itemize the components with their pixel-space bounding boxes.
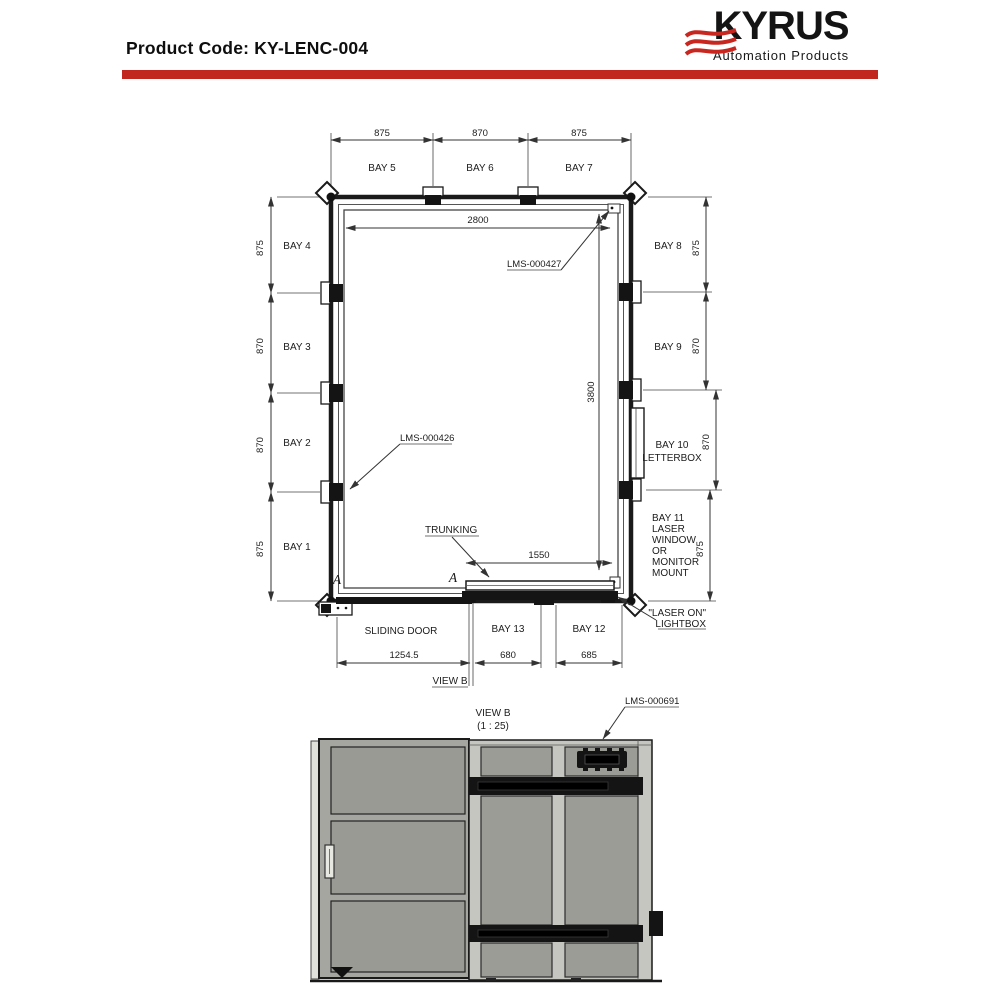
- top-right-corner-bracket: [608, 204, 620, 213]
- dim-bay5: 875: [374, 128, 390, 139]
- dim-bay10: 870: [701, 434, 712, 450]
- label-bay6: BAY 6: [466, 163, 494, 174]
- label-bay4: BAY 4: [283, 241, 311, 252]
- dim-bay3: 870: [255, 338, 266, 354]
- laser-on-label: "LASER ON": [648, 608, 706, 619]
- view-b-ref-label: VIEW B: [432, 676, 467, 687]
- svg-text:MONITOR: MONITOR: [652, 557, 699, 568]
- svg-text:WINDOW: WINDOW: [652, 535, 696, 546]
- view-b-drawing: VIEW B (1 : 25) LMS-000691: [310, 696, 679, 981]
- plan-view-drawing: 875 870 875 BAY 5 BAY 6 BAY 7 2800 3800 …: [255, 128, 722, 687]
- side-connector-box: [649, 911, 663, 936]
- sliding-door-panel: [336, 597, 472, 604]
- letterbox-slot: [631, 408, 644, 478]
- lightbox-label: LIGHTBOX: [655, 619, 706, 630]
- trunking-channel: [466, 581, 614, 590]
- svg-text:OR: OR: [652, 546, 667, 557]
- part-label-top-right: LMS-000427: [507, 259, 561, 270]
- dim-bay12: 685: [581, 650, 597, 661]
- trunking-rail-bottom: [469, 925, 643, 942]
- view-b-scale: (1 : 25): [477, 721, 509, 732]
- svg-text:LASER: LASER: [652, 524, 685, 535]
- sliding-door-label: SLIDING DOOR: [365, 626, 438, 637]
- technical-drawing: 875 870 875 BAY 5 BAY 6 BAY 7 2800 3800 …: [0, 0, 1000, 1000]
- label-bay12: BAY 12: [573, 624, 606, 635]
- trunking-label: TRUNKING: [425, 525, 477, 536]
- dim-bay1: 875: [255, 541, 266, 557]
- section-marker-a-right: A: [448, 570, 458, 585]
- door-handle: [325, 845, 334, 878]
- label-bay5: BAY 5: [368, 163, 396, 174]
- label-bay10: BAY 10: [656, 440, 689, 451]
- svg-text:BAY 11: BAY 11: [652, 513, 685, 524]
- label-bay8: BAY 8: [654, 241, 682, 252]
- part-label-left-wall: LMS-000426: [400, 433, 454, 444]
- dim-bay2: 870: [255, 437, 266, 453]
- dim-inner-height: 3800: [586, 381, 597, 402]
- dim-bay4: 875: [255, 240, 266, 256]
- laser-on-lightbox: [577, 748, 627, 771]
- dim-bay11: 875: [695, 541, 706, 557]
- view-b-frame-section: [469, 740, 663, 981]
- label-bay10-letterbox: LETTERBOX: [642, 453, 702, 464]
- dim-bay9: 870: [691, 338, 702, 354]
- dim-bay8: 875: [691, 240, 702, 256]
- label-bay11-block: BAY 11 LASER WINDOW OR MONITOR MOUNT: [652, 513, 699, 579]
- svg-text:MOUNT: MOUNT: [652, 568, 689, 579]
- dim-bay6: 870: [472, 128, 488, 139]
- trunking-rail-top: [469, 777, 643, 795]
- dim-bay7: 875: [571, 128, 587, 139]
- dim-trunking: 1550: [528, 550, 549, 561]
- dim-inner-width: 2800: [467, 215, 488, 226]
- label-bay9: BAY 9: [654, 342, 682, 353]
- label-bay2: BAY 2: [283, 438, 311, 449]
- view-b-sliding-door: [311, 739, 469, 979]
- section-marker-a-left: A: [332, 572, 342, 587]
- dim-bay13: 680: [500, 650, 516, 661]
- label-bay1: BAY 1: [283, 542, 311, 553]
- view-b-title: VIEW B: [475, 708, 510, 719]
- label-bay3: BAY 3: [283, 342, 311, 353]
- dim-sliding-door: 1254.5: [389, 650, 418, 661]
- part-label-lightbox: LMS-000691: [625, 696, 679, 707]
- datasheet-page: Product Code: KY-LENC-004 KYRUS Automati…: [0, 0, 1000, 1000]
- label-bay13: BAY 13: [492, 624, 525, 635]
- label-bay7: BAY 7: [565, 163, 593, 174]
